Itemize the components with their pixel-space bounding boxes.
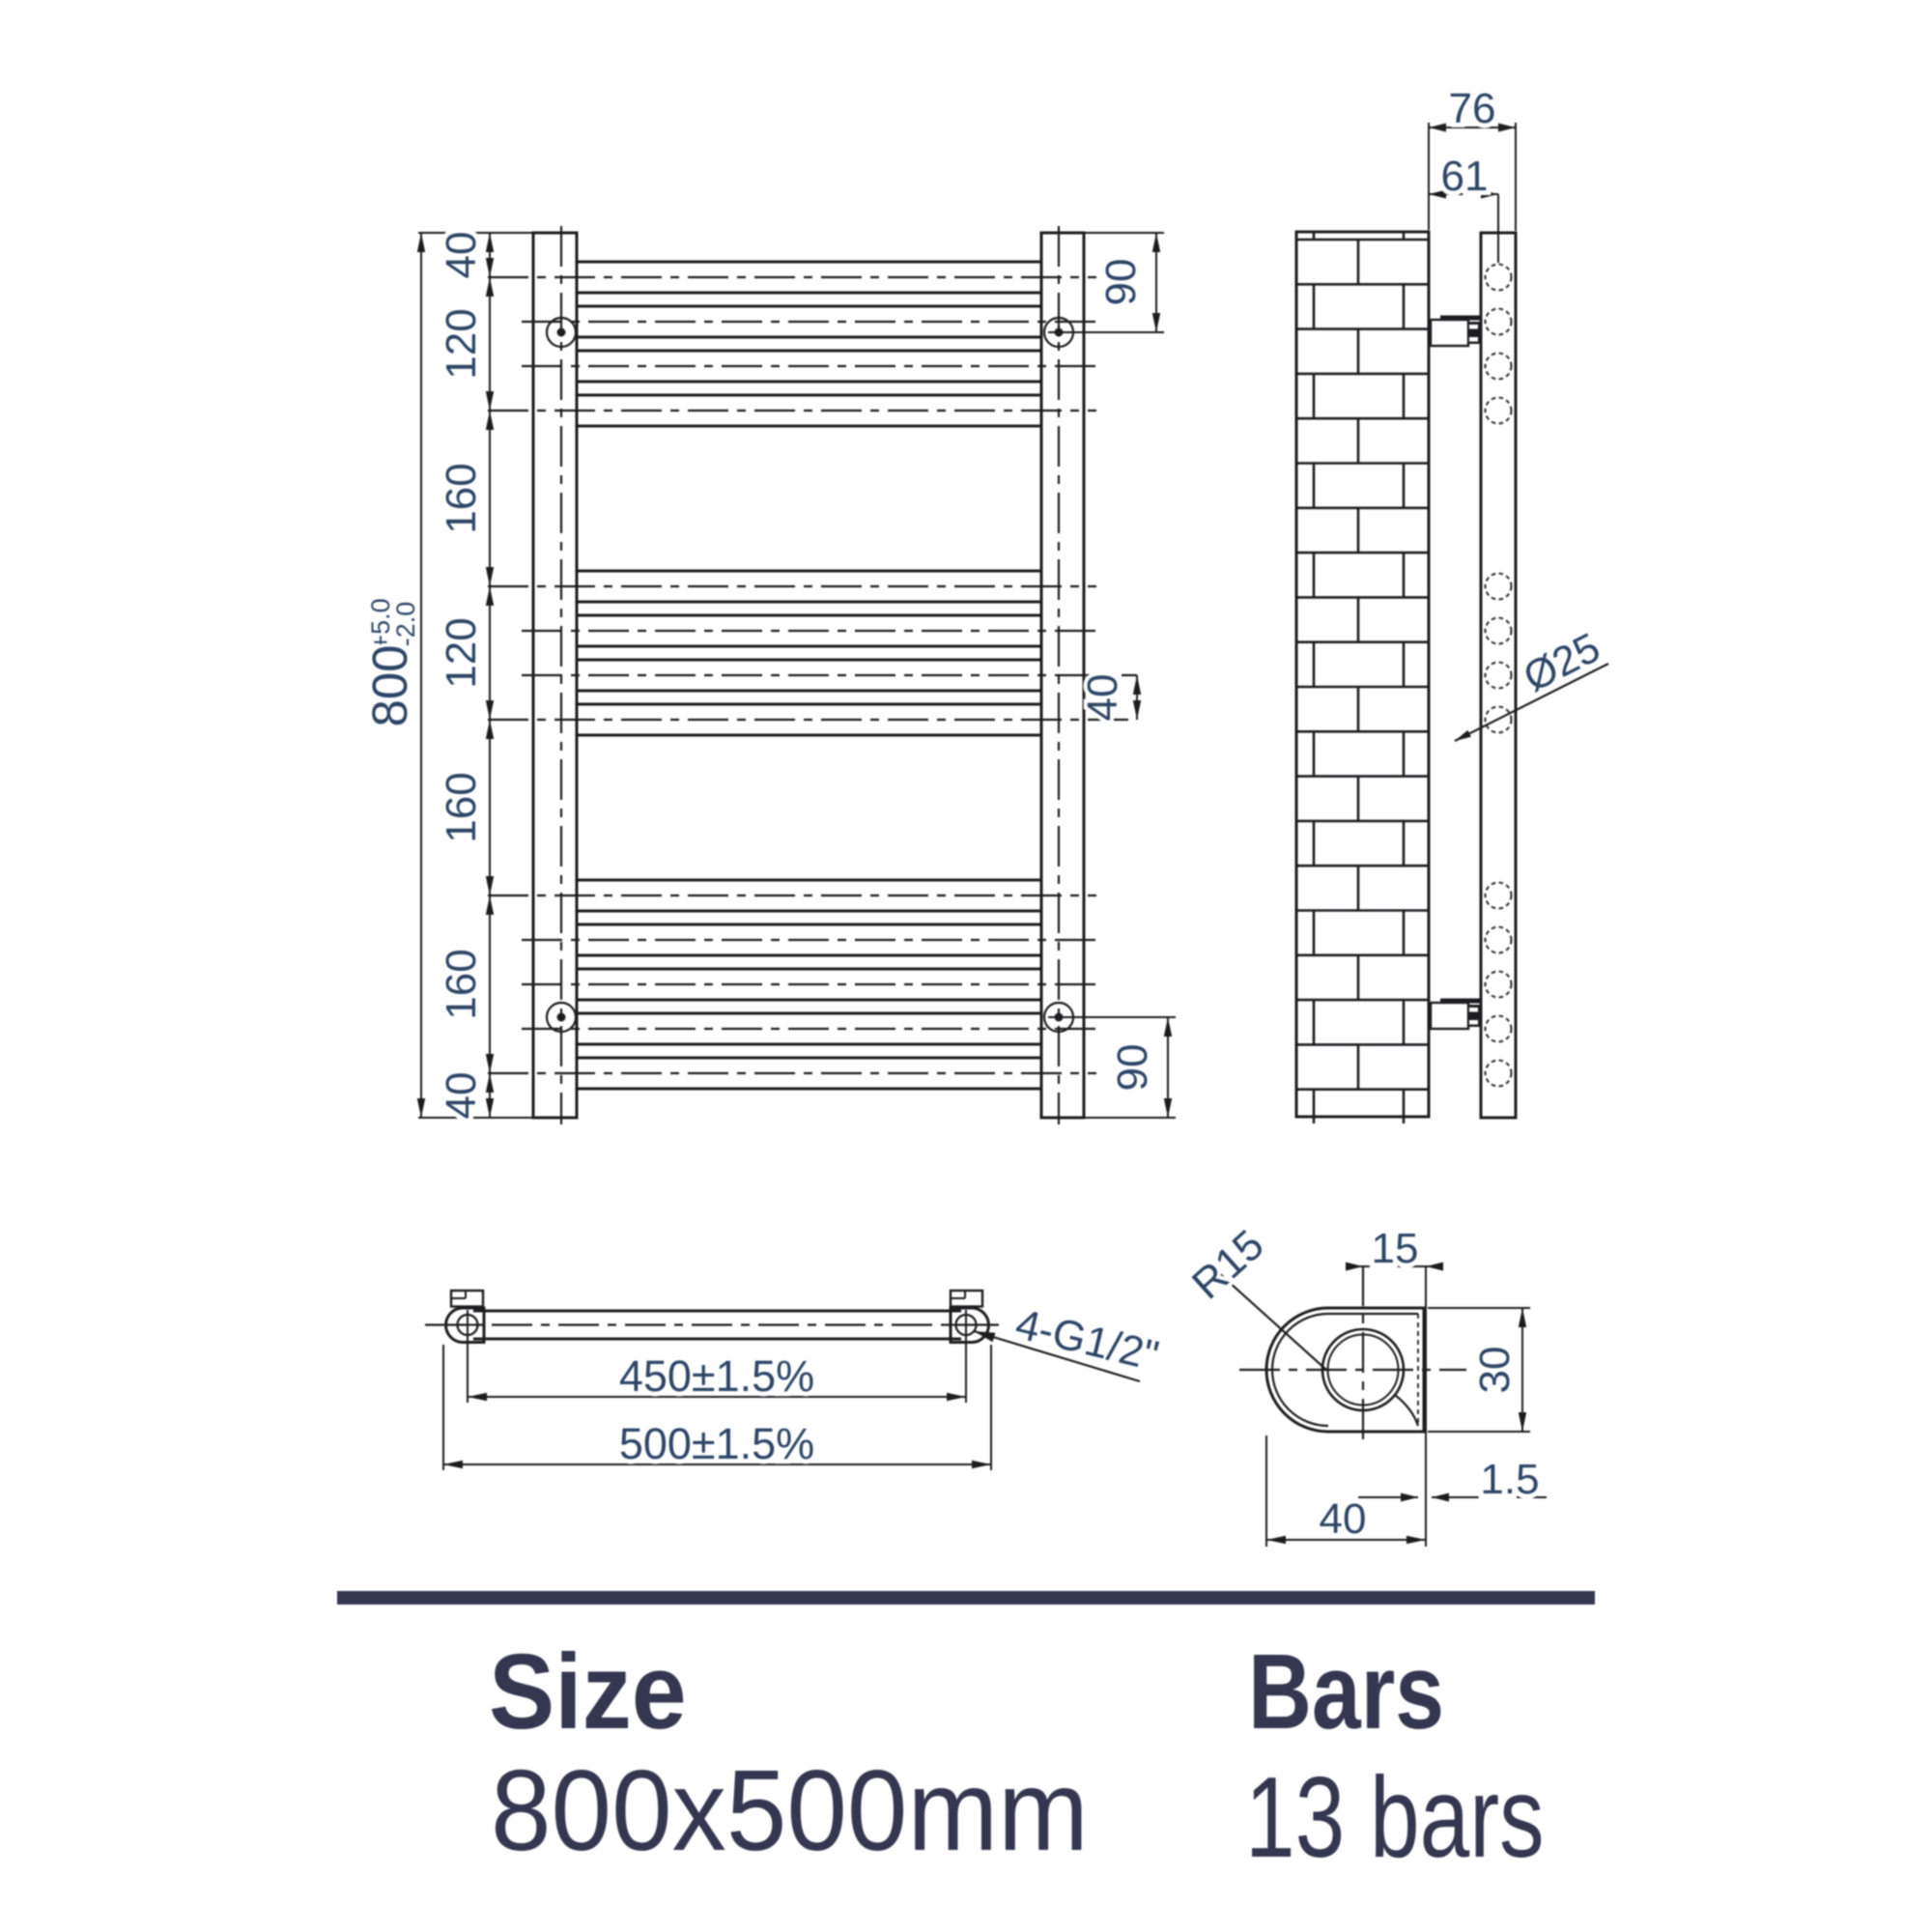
svg-text:160: 160 <box>438 772 485 842</box>
svg-text:30: 30 <box>1471 1347 1519 1394</box>
svg-text:-2.0: -2.0 <box>391 602 420 647</box>
svg-text:61: 61 <box>1441 153 1489 200</box>
svg-text:Bars: Bars <box>1248 1633 1444 1751</box>
svg-text:13 bars: 13 bars <box>1245 1752 1545 1882</box>
svg-text:500±1.5%: 500±1.5% <box>619 1419 814 1468</box>
svg-text:Size: Size <box>489 1633 687 1751</box>
svg-text:800: 800 <box>362 644 417 726</box>
svg-text:160: 160 <box>438 463 485 533</box>
svg-text:40: 40 <box>438 232 485 279</box>
svg-text:1.5: 1.5 <box>1480 1456 1539 1503</box>
svg-text:800x500mm: 800x500mm <box>491 1746 1089 1875</box>
svg-text:160: 160 <box>438 949 485 1019</box>
svg-text:90: 90 <box>1109 1044 1156 1092</box>
svg-text:40: 40 <box>1079 674 1126 722</box>
svg-text:15: 15 <box>1372 1225 1419 1272</box>
svg-text:90: 90 <box>1097 259 1145 306</box>
svg-text:40: 40 <box>1320 1495 1367 1543</box>
svg-text:76: 76 <box>1449 85 1496 132</box>
svg-text:120: 120 <box>438 617 485 688</box>
svg-text:120: 120 <box>438 308 485 379</box>
svg-text:450±1.5%: 450±1.5% <box>619 1351 814 1401</box>
svg-text:40: 40 <box>438 1072 485 1120</box>
